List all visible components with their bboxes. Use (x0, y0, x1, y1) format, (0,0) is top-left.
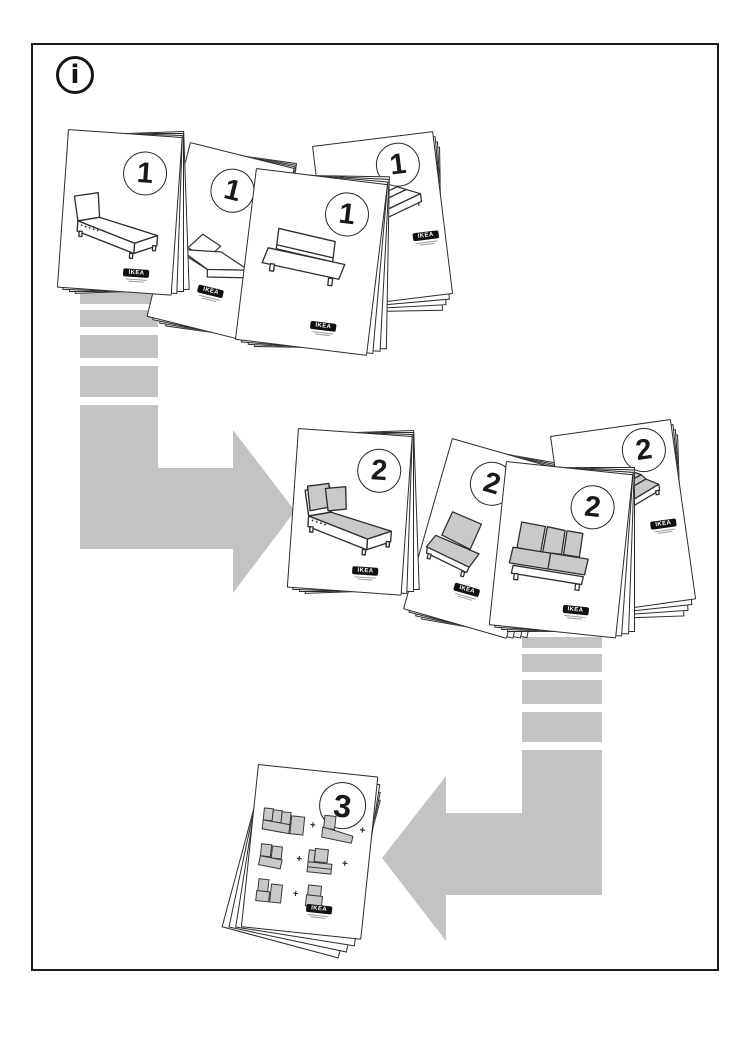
armless-sofa-frame-illustration (254, 218, 370, 307)
logo-fineprint-line (128, 281, 143, 283)
arrow-step2-to-step3 (382, 637, 602, 941)
corner-unit-icon (303, 846, 340, 879)
chaise-lounge-frame-illustration (62, 182, 173, 265)
two-seat-combo-icon (256, 841, 295, 875)
step-number: 2 (480, 468, 504, 500)
loveseat-with-cushions-illustration (501, 513, 621, 604)
booklet-cover: 1 IKEA (57, 129, 183, 296)
ikea-logo: IKEA (561, 605, 588, 621)
step-number: 2 (583, 492, 602, 523)
booklet-step2-chaise-cushions: 2 IKEA (287, 428, 413, 596)
unit-chaise-combo-icon (252, 875, 291, 909)
booklet-cover: 3 + + (241, 764, 378, 940)
booklet-cover: 2 IKEA (287, 428, 413, 596)
step-number: 1 (136, 158, 154, 188)
chaise-unit-icon (317, 812, 358, 846)
booklet-cover: 1 IKEA (235, 168, 388, 356)
booklet-step1-chaise-frame: 1 IKEA (57, 129, 183, 296)
logo-fineprint-line (311, 916, 326, 919)
chaise-with-cushions-illustration (292, 475, 407, 562)
combination-row: + + (256, 841, 365, 882)
ikea-logo: IKEA (352, 566, 379, 581)
ikea-logo: IKEA (309, 321, 336, 337)
plus-sign: + (341, 859, 348, 870)
logo-fineprint-line (357, 579, 372, 581)
plus-sign: + (292, 889, 299, 900)
logo-fineprint-line (567, 617, 582, 620)
info-icon: i (56, 56, 94, 94)
step-number: 1 (337, 199, 357, 230)
ikea-logo-text: IKEA (123, 268, 149, 278)
booklet-step2-loveseat-cushions: 2 IKEA (489, 461, 634, 638)
plus-sign: + (296, 855, 303, 866)
info-icon-glyph: i (71, 62, 80, 88)
logo-fineprint-line (315, 333, 330, 336)
booklet-step1-sofa-frame: 1 IKEA (235, 168, 388, 356)
ikea-logo-text: IKEA (352, 566, 378, 576)
plus-sign: + (359, 826, 366, 837)
plus-sign: + (309, 821, 316, 832)
ikea-logo: IKEA (305, 904, 332, 920)
step-number: 1 (388, 149, 408, 180)
ikea-logo: IKEA (123, 268, 150, 283)
booklet-cover: 2 IKEA (489, 461, 634, 638)
sofa-chaise-combo-icon (260, 806, 309, 841)
booklet-step3-combinations: 3 + + (241, 764, 378, 940)
instruction-page: i 1 (0, 0, 750, 1061)
step-number: 1 (221, 175, 244, 207)
